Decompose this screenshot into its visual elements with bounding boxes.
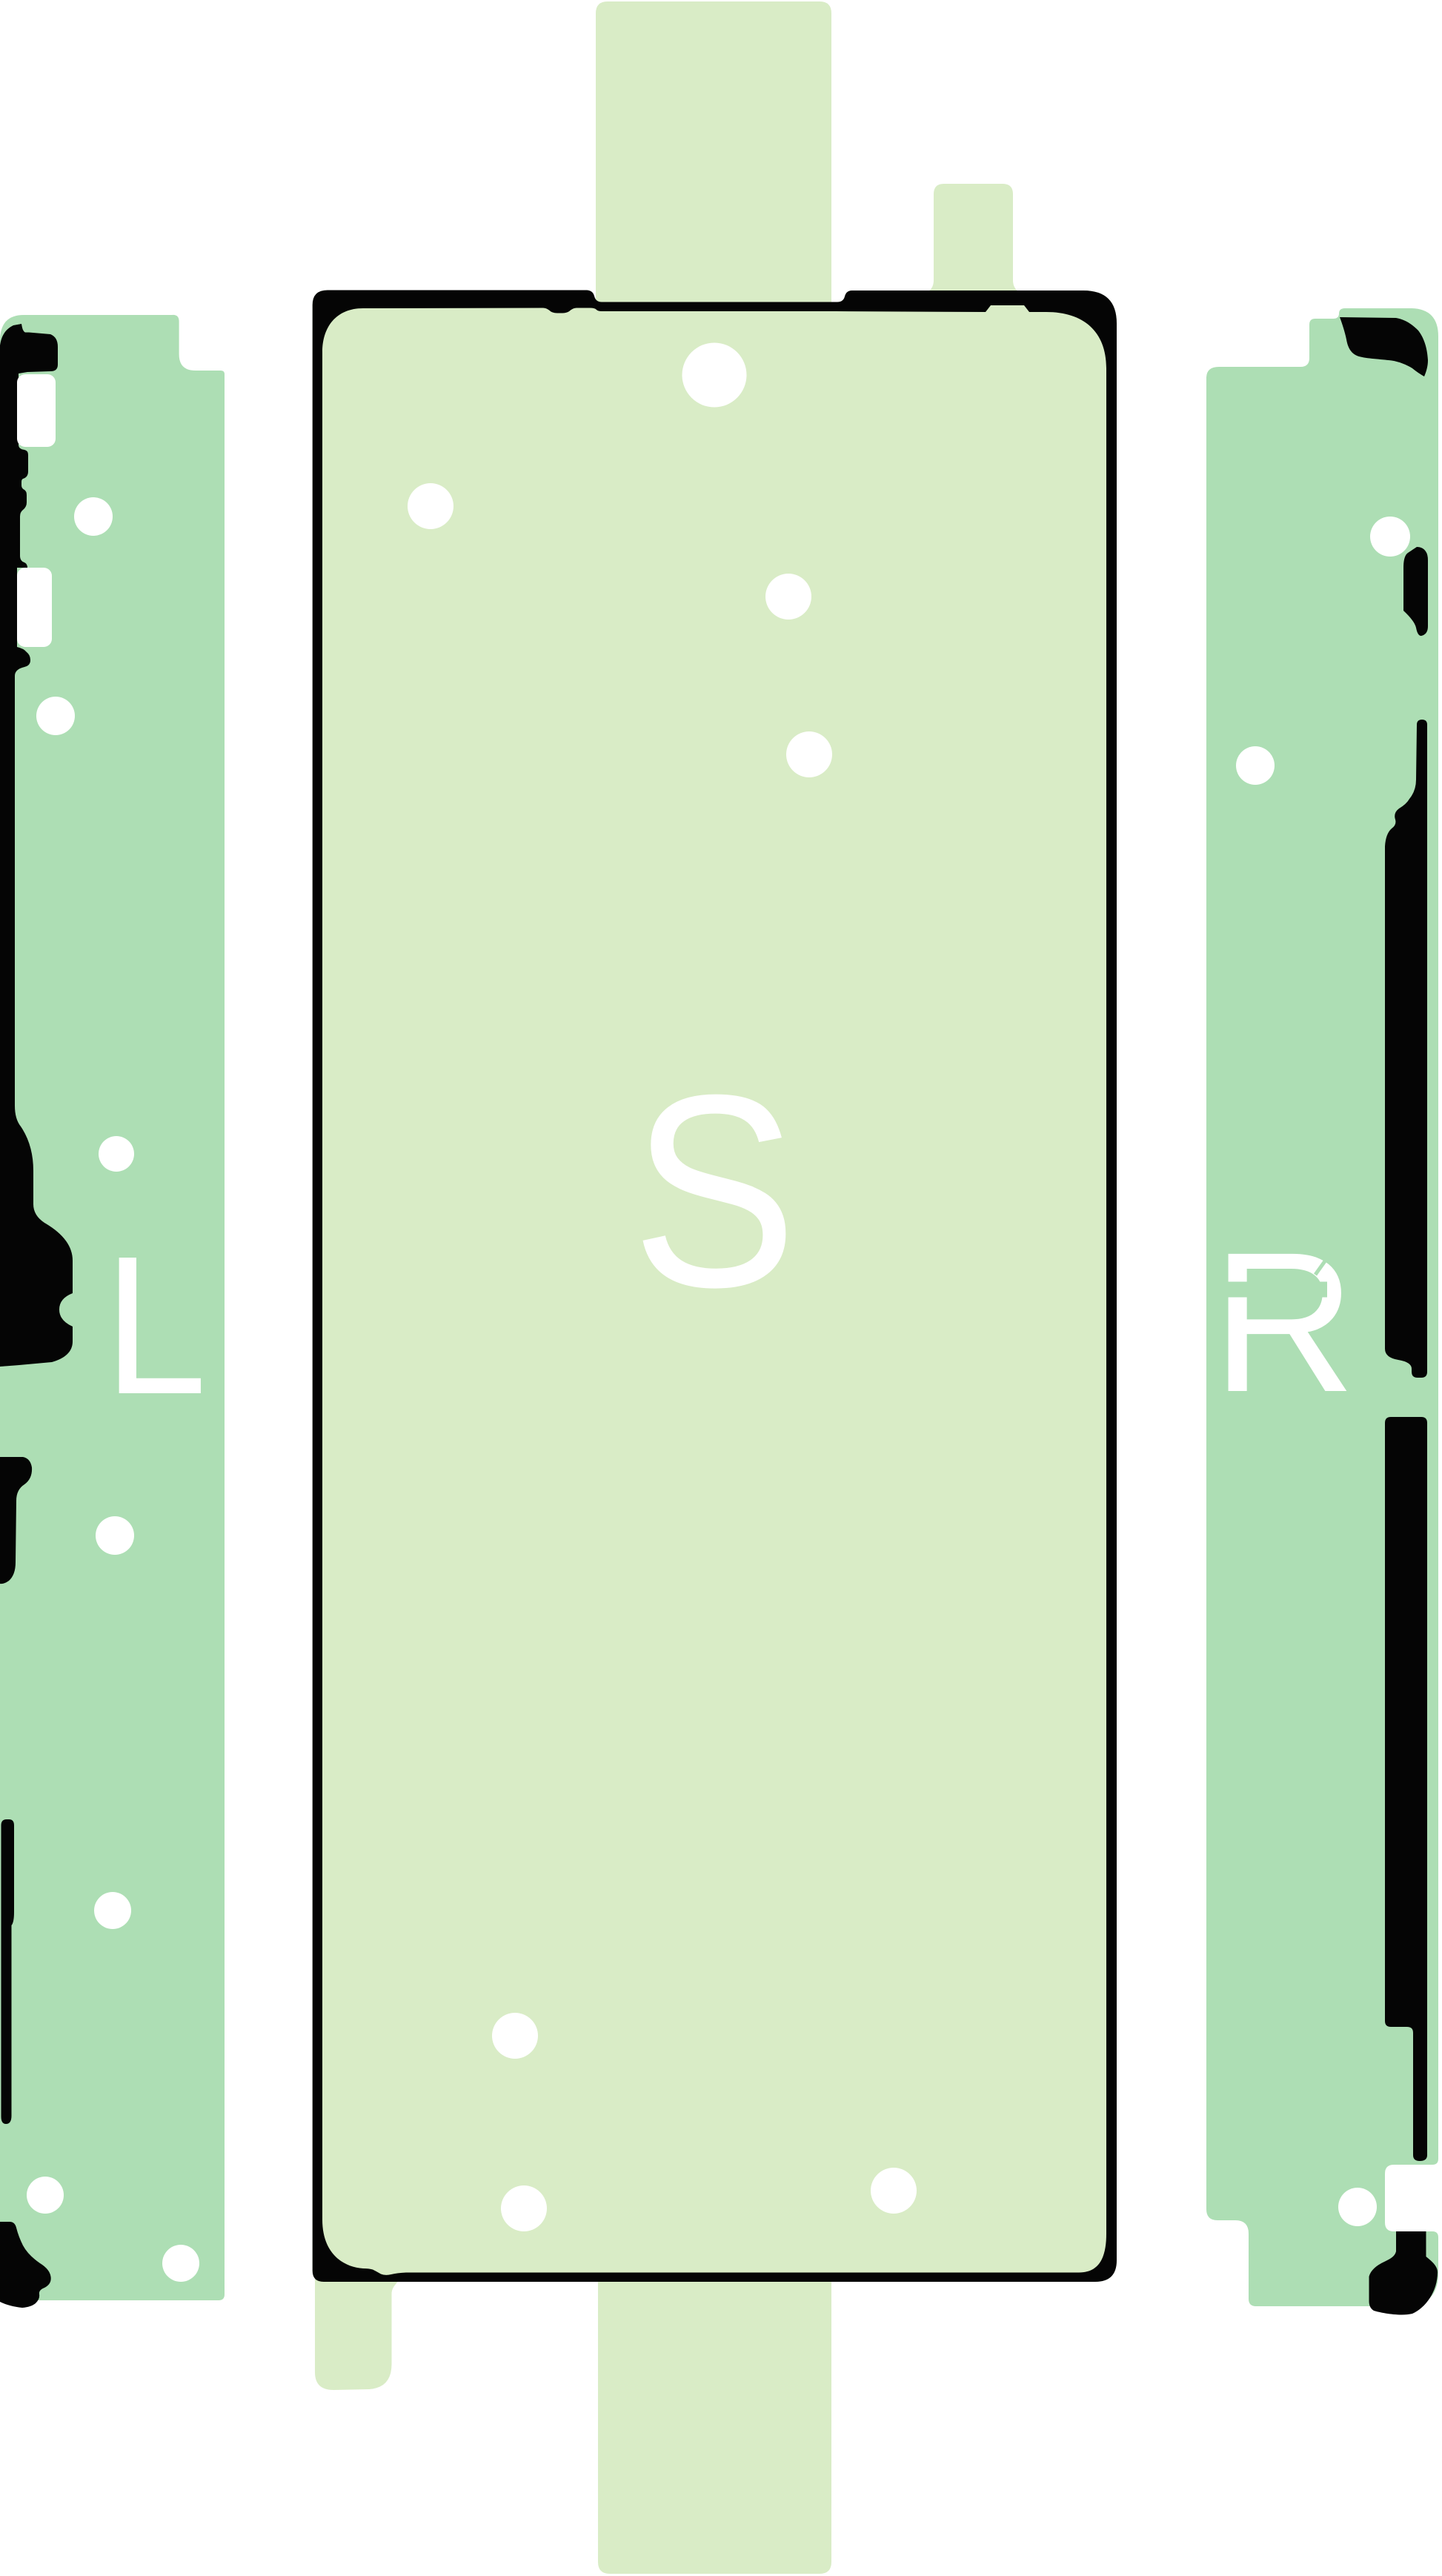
svg-text:R: R	[1212, 1211, 1356, 1434]
svg-text:S: S	[631, 1038, 797, 1344]
svg-text:L: L	[104, 1215, 207, 1435]
